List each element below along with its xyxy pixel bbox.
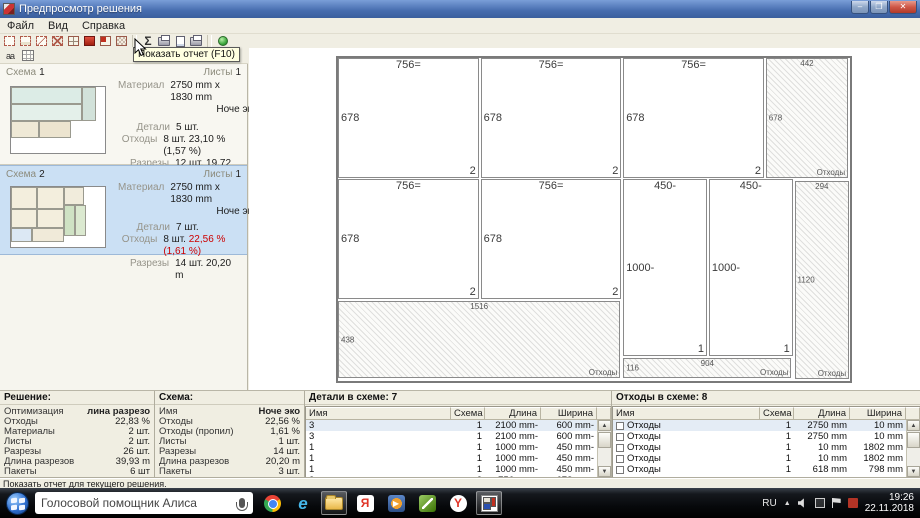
- piece-count-label: 1: [698, 343, 704, 355]
- thumb-piece: [11, 104, 82, 121]
- piece-count-label: 2: [755, 165, 761, 177]
- clock-time: 19:26: [865, 492, 914, 503]
- close-button-icon[interactable]: ✕: [889, 1, 917, 14]
- table-cell: 1: [451, 464, 485, 475]
- taskbar-yandex-browser-icon[interactable]: Я: [352, 491, 378, 515]
- thumb-piece: [37, 209, 63, 228]
- table-row[interactable]: Отходы110 mm1802 mm: [613, 453, 920, 464]
- waste-checkbox[interactable]: [616, 444, 624, 452]
- cut-piece[interactable]: 756=6782: [338, 58, 479, 178]
- piece-height-label: 438: [341, 335, 354, 344]
- taskbar-chrome-icon[interactable]: [259, 491, 285, 515]
- menu-file[interactable]: Файл: [0, 20, 41, 32]
- table-cell: 1: [760, 464, 794, 475]
- cut-piece[interactable]: 450-1000-1: [709, 179, 793, 356]
- print-preview-icon[interactable]: [173, 35, 187, 48]
- waste-piece[interactable]: 2941120Отходы: [795, 181, 850, 379]
- toolbar-separator: [207, 35, 212, 47]
- scheme-1-sheets: Листы1: [204, 67, 241, 78]
- tray-expand-icon[interactable]: ▲: [784, 500, 791, 507]
- table-cell: 1: [451, 420, 485, 431]
- piece-width-label: 450-: [624, 180, 706, 192]
- thumb-piece: [11, 228, 32, 242]
- table-cell: 2100 mm-: [485, 431, 541, 442]
- thumb-piece: [82, 87, 95, 121]
- thumb-piece: [11, 187, 37, 209]
- tool-fill-icon[interactable]: [82, 35, 96, 48]
- piece-width-label: 294: [796, 182, 849, 191]
- details-panel-title: Детали в схеме: 7: [305, 391, 611, 405]
- table-cell: 1000 mm-: [485, 453, 541, 464]
- piece-width-label: 904: [624, 359, 790, 368]
- stat-label: Пакеты: [159, 467, 192, 477]
- stat-label: Пакеты: [4, 467, 37, 477]
- cutting-sheet: 756=6782756=6782756=6782442678Отходы756=…: [336, 56, 852, 383]
- clock-date: 22.11.2018: [865, 503, 914, 514]
- search-box[interactable]: Голосовой помощник Алиса: [35, 492, 253, 514]
- scheme-2-waste: 8 шт. 22,56 % (1,61 %): [163, 234, 241, 258]
- scrollbar-thumb[interactable]: [907, 432, 920, 448]
- table-row[interactable]: Отходы12750 mm10 mm: [613, 420, 920, 431]
- table-cell: Отходы: [613, 442, 760, 453]
- tool-grid-icon[interactable]: [66, 35, 80, 48]
- table-scrollbar[interactable]: ▲▼: [906, 420, 920, 477]
- table-cell: Отходы: [613, 453, 760, 464]
- taskbar-yandex-icon[interactable]: Y: [445, 491, 471, 515]
- thumb-piece: [75, 205, 86, 236]
- piece-height-label: 678: [484, 233, 502, 245]
- thumb-piece: [64, 205, 75, 236]
- table-row[interactable]: 312100 mm-600 mm-: [306, 420, 611, 431]
- scheme-card-1[interactable]: Схема1 Листы1 Материал2750 mm x 1830 mm …: [0, 64, 247, 165]
- table-row[interactable]: Отходы110 mm1802 mm: [613, 442, 920, 453]
- column-header[interactable]: Ширина: [541, 407, 597, 420]
- cut-piece[interactable]: 756=6782: [481, 58, 622, 178]
- run-icon[interactable]: [216, 35, 230, 48]
- scheme-1-thumbnail: [10, 86, 106, 154]
- thumb-piece: [64, 187, 85, 205]
- titlebar: Предпросмотр решения – ❐ ✕: [0, 0, 920, 18]
- piece-height-label: 678: [341, 233, 359, 245]
- stat-value: 3 шт.: [279, 467, 300, 477]
- table-cell: 10 mm: [850, 420, 906, 431]
- thumb-piece: [11, 121, 39, 138]
- table-cell: 798 mm: [850, 464, 906, 475]
- search-input[interactable]: Голосовой помощник Алиса: [41, 496, 233, 510]
- table-cell: 10 mm: [850, 431, 906, 442]
- stat-row: Пакеты3 шт.: [159, 467, 300, 477]
- table-cell: 2100 mm-: [485, 420, 541, 431]
- table-scrollbar[interactable]: ▲▼: [597, 420, 611, 477]
- taskbar: Голосовой помощник Алиса eЯY RU ▲ 19:26 …: [0, 488, 920, 518]
- volume-icon[interactable]: [798, 498, 808, 508]
- scheme-1-details: 5 шт.: [176, 122, 199, 134]
- piece-count-label: 2: [612, 165, 618, 177]
- tool-grid-red-icon[interactable]: [98, 35, 112, 48]
- piece-height-label: 678: [626, 112, 644, 124]
- table-cell: 1: [451, 442, 485, 453]
- table-cell: 2750 mm: [794, 420, 850, 431]
- menubar: Файл Вид Справка: [0, 18, 920, 34]
- piece-count-label: 2: [612, 286, 618, 298]
- taskbar-graphics-app-icon[interactable]: [414, 491, 440, 515]
- waste-piece[interactable]: 442678Отходы: [766, 58, 848, 178]
- waste-panel: Отходы в схеме: 8 ИмяСхемаДлинаШиринаОтх…: [612, 391, 920, 478]
- cut-piece[interactable]: 756=6782: [338, 179, 479, 299]
- piece-count-label: 2: [470, 286, 476, 298]
- table-cell: 450 mm-: [541, 464, 597, 475]
- tool-diagonal-icon[interactable]: [34, 35, 48, 48]
- table-cell: 1000 mm-: [485, 442, 541, 453]
- table-cell: 600 mm-: [541, 431, 597, 442]
- table-cell: 1: [760, 420, 794, 431]
- column-header[interactable]: Длина: [794, 407, 850, 420]
- piece-width-label: 756=: [339, 59, 478, 71]
- table-cell: 1000 mm-: [485, 464, 541, 475]
- column-header[interactable]: Имя: [613, 407, 760, 420]
- statusbar: Показать отчет для текущего решения.: [0, 478, 920, 488]
- flag-icon[interactable]: [832, 498, 841, 508]
- minimize-button-icon[interactable]: –: [851, 1, 869, 14]
- table-cell: 1: [760, 442, 794, 453]
- start-button-icon[interactable]: [6, 492, 29, 515]
- piece-height-label: 678: [341, 112, 359, 124]
- piece-width-label: 442: [767, 59, 847, 68]
- table-row[interactable]: Отходы1618 mm798 mm: [613, 464, 920, 475]
- thumb-piece: [11, 87, 82, 104]
- piece-width-label: 756=: [339, 180, 478, 192]
- taskbar-media-player-icon[interactable]: [383, 491, 409, 515]
- taskbar-ie-icon[interactable]: e: [290, 491, 316, 515]
- app-window: Предпросмотр решения – ❐ ✕ Файл Вид Спра…: [0, 0, 920, 518]
- table-cell: 450 mm-: [541, 442, 597, 453]
- column-header[interactable]: Схема: [451, 407, 485, 420]
- waste-piece[interactable]: 1516438Отходы: [338, 301, 620, 378]
- waste-label: Отходы: [589, 368, 618, 377]
- thumb-piece: [39, 121, 71, 138]
- table-cell: 1802 mm: [850, 442, 906, 453]
- table-cell: 1: [306, 464, 451, 475]
- cut-piece[interactable]: 450-1000-1: [623, 179, 707, 356]
- window-title: Предпросмотр решения: [19, 3, 851, 15]
- waste-checkbox[interactable]: [616, 422, 624, 430]
- scheme-1-material: 2750 mm x 1830 mm: [170, 80, 241, 104]
- diagram-canvas: 756=6782756=6782756=6782442678Отходы756=…: [249, 48, 920, 390]
- print-setup-icon[interactable]: [189, 35, 203, 48]
- scroll-up-icon[interactable]: ▲: [907, 420, 920, 431]
- table-row[interactable]: 111000 mm-450 mm-: [306, 453, 611, 464]
- table-cell: 600 mm-: [541, 420, 597, 431]
- scroll-down-icon[interactable]: ▼: [598, 466, 611, 477]
- table-cell: 1: [451, 431, 485, 442]
- column-header[interactable]: Длина: [485, 407, 541, 420]
- table-cell: 1: [760, 453, 794, 464]
- text-size-icon[interactable]: aa: [3, 49, 17, 62]
- scroll-up-icon[interactable]: ▲: [598, 420, 611, 431]
- table-row[interactable]: Отходы12750 mm10 mm: [613, 431, 920, 442]
- maximize-button-icon[interactable]: ❐: [870, 1, 888, 14]
- cut-piece[interactable]: 756=6782: [481, 179, 622, 299]
- table-cell: 1802 mm: [850, 453, 906, 464]
- piece-height-label: 1120: [798, 275, 815, 284]
- column-header[interactable]: Имя: [306, 407, 451, 420]
- taskbar-cutting-app-icon[interactable]: [476, 491, 502, 515]
- scrollbar-thumb[interactable]: [598, 432, 611, 448]
- language-indicator[interactable]: RU: [762, 498, 776, 509]
- table-cell: Отходы: [613, 431, 760, 442]
- waste-checkbox[interactable]: [616, 466, 624, 474]
- stat-row: Пакеты6 шт: [4, 467, 150, 477]
- piece-height-label: 1000-: [626, 262, 654, 274]
- print-icon[interactable]: [157, 35, 171, 48]
- piece-width-label: 450-: [710, 180, 792, 192]
- table-cell: 10 mm: [794, 442, 850, 453]
- tray-app-icon[interactable]: [848, 498, 858, 508]
- waste-checkbox[interactable]: [616, 433, 624, 441]
- column-header[interactable]: Ширина: [850, 407, 906, 420]
- table-cell: 618 mm: [794, 464, 850, 475]
- thumb-piece: [11, 209, 37, 228]
- thumb-piece: [32, 228, 64, 242]
- scheme-2-label: Схема2: [6, 169, 45, 180]
- table-cell: 1: [760, 431, 794, 442]
- microphone-icon[interactable]: [239, 498, 245, 508]
- solution-panel-title: Решение:: [0, 391, 154, 405]
- menu-help[interactable]: Справка: [75, 20, 132, 32]
- piece-height-label: 116: [626, 363, 639, 372]
- solution-panel: Решение: Оптимизациялина разрезоОтходы22…: [0, 391, 155, 478]
- mouse-cursor: [134, 38, 147, 57]
- menu-view[interactable]: Вид: [41, 20, 75, 32]
- tool-grid-pattern-icon[interactable]: [114, 35, 128, 48]
- waste-label: Отходы: [817, 168, 846, 177]
- sidebar: Схема1 Листы1 Материал2750 mm x 1830 mm …: [0, 64, 248, 390]
- table-cell: 1: [451, 453, 485, 464]
- table-cell: 10 mm: [794, 453, 850, 464]
- table-cell: 1: [306, 442, 451, 453]
- cut-piece[interactable]: 756=6782: [623, 58, 764, 178]
- system-tray: RU ▲ 19:26 22.11.2018: [762, 492, 914, 514]
- scheme-2-material: 2750 mm x 1830 mm: [170, 182, 241, 206]
- piece-height-label: 1000-: [712, 262, 740, 274]
- tool-piece-outline-icon[interactable]: [18, 35, 32, 48]
- scheme-1-label: Схема1: [6, 67, 45, 78]
- scroll-down-icon[interactable]: ▼: [907, 466, 920, 477]
- scheme-2-thumbnail: [10, 186, 106, 248]
- table-view-icon[interactable]: [21, 49, 35, 62]
- scheme-1-waste: 8 шт. 23,10 % (1,57 %): [163, 134, 241, 158]
- scheme-panel-title: Схема:: [155, 391, 304, 405]
- piece-height-label: 678: [769, 113, 782, 122]
- app-icon: [3, 3, 15, 15]
- tool-sheet-outline-icon[interactable]: [2, 35, 16, 48]
- table-row[interactable]: 111000 mm-450 mm-: [306, 464, 611, 475]
- piece-width-label: 756=: [482, 180, 621, 192]
- table-cell: 2750 mm: [794, 431, 850, 442]
- stat-value: 6 шт: [130, 467, 150, 477]
- table-cell: 3: [306, 431, 451, 442]
- bottom-panels: Решение: Оптимизациялина разрезоОтходы22…: [0, 390, 920, 478]
- piece-width-label: 756=: [624, 59, 763, 71]
- tooltip: Показать отчет (F10): [133, 47, 240, 62]
- scheme-panel: Схема: ИмяНоче экоОтходы22,56 %Отходы (п…: [155, 391, 305, 478]
- table-cell: 450 mm-: [541, 453, 597, 464]
- table-row[interactable]: 312100 mm-600 mm-: [306, 431, 611, 442]
- action-center-icon[interactable]: [815, 498, 825, 508]
- taskbar-explorer-icon[interactable]: [321, 491, 347, 515]
- waste-label: Отходы: [818, 369, 847, 378]
- scheme-2-details: 7 шт.: [176, 222, 199, 234]
- piece-height-label: 678: [484, 112, 502, 124]
- waste-piece[interactable]: 904116Отходы: [623, 358, 791, 379]
- scheme-card-2[interactable]: Схема2 Листы1 Материал2750 mm x 1830 mm …: [0, 165, 247, 255]
- column-header[interactable]: Схема: [760, 407, 794, 420]
- table-cell: 1: [306, 453, 451, 464]
- clock[interactable]: 19:26 22.11.2018: [865, 492, 914, 514]
- scheme-2-sheets: Листы1: [204, 169, 241, 180]
- table-row[interactable]: 111000 mm-450 mm-: [306, 442, 611, 453]
- tool-cross-icon[interactable]: [50, 35, 64, 48]
- details-panel: Детали в схеме: 7 ИмяСхемаДлинаШирина312…: [305, 391, 612, 478]
- piece-count-label: 2: [470, 165, 476, 177]
- piece-width-label: 756=: [482, 59, 621, 71]
- waste-panel-title: Отходы в схеме: 8: [612, 391, 920, 405]
- waste-label: Отходы: [760, 368, 789, 377]
- table-cell: 3: [306, 420, 451, 431]
- piece-count-label: 1: [784, 343, 790, 355]
- scheme-2-cuts: 14 шт. 20,20 m: [175, 258, 241, 282]
- waste-checkbox[interactable]: [616, 455, 624, 463]
- thumb-piece: [37, 187, 63, 209]
- table-cell: Отходы: [613, 420, 760, 431]
- table-cell: Отходы: [613, 464, 760, 475]
- piece-width-label: 1516: [339, 302, 619, 311]
